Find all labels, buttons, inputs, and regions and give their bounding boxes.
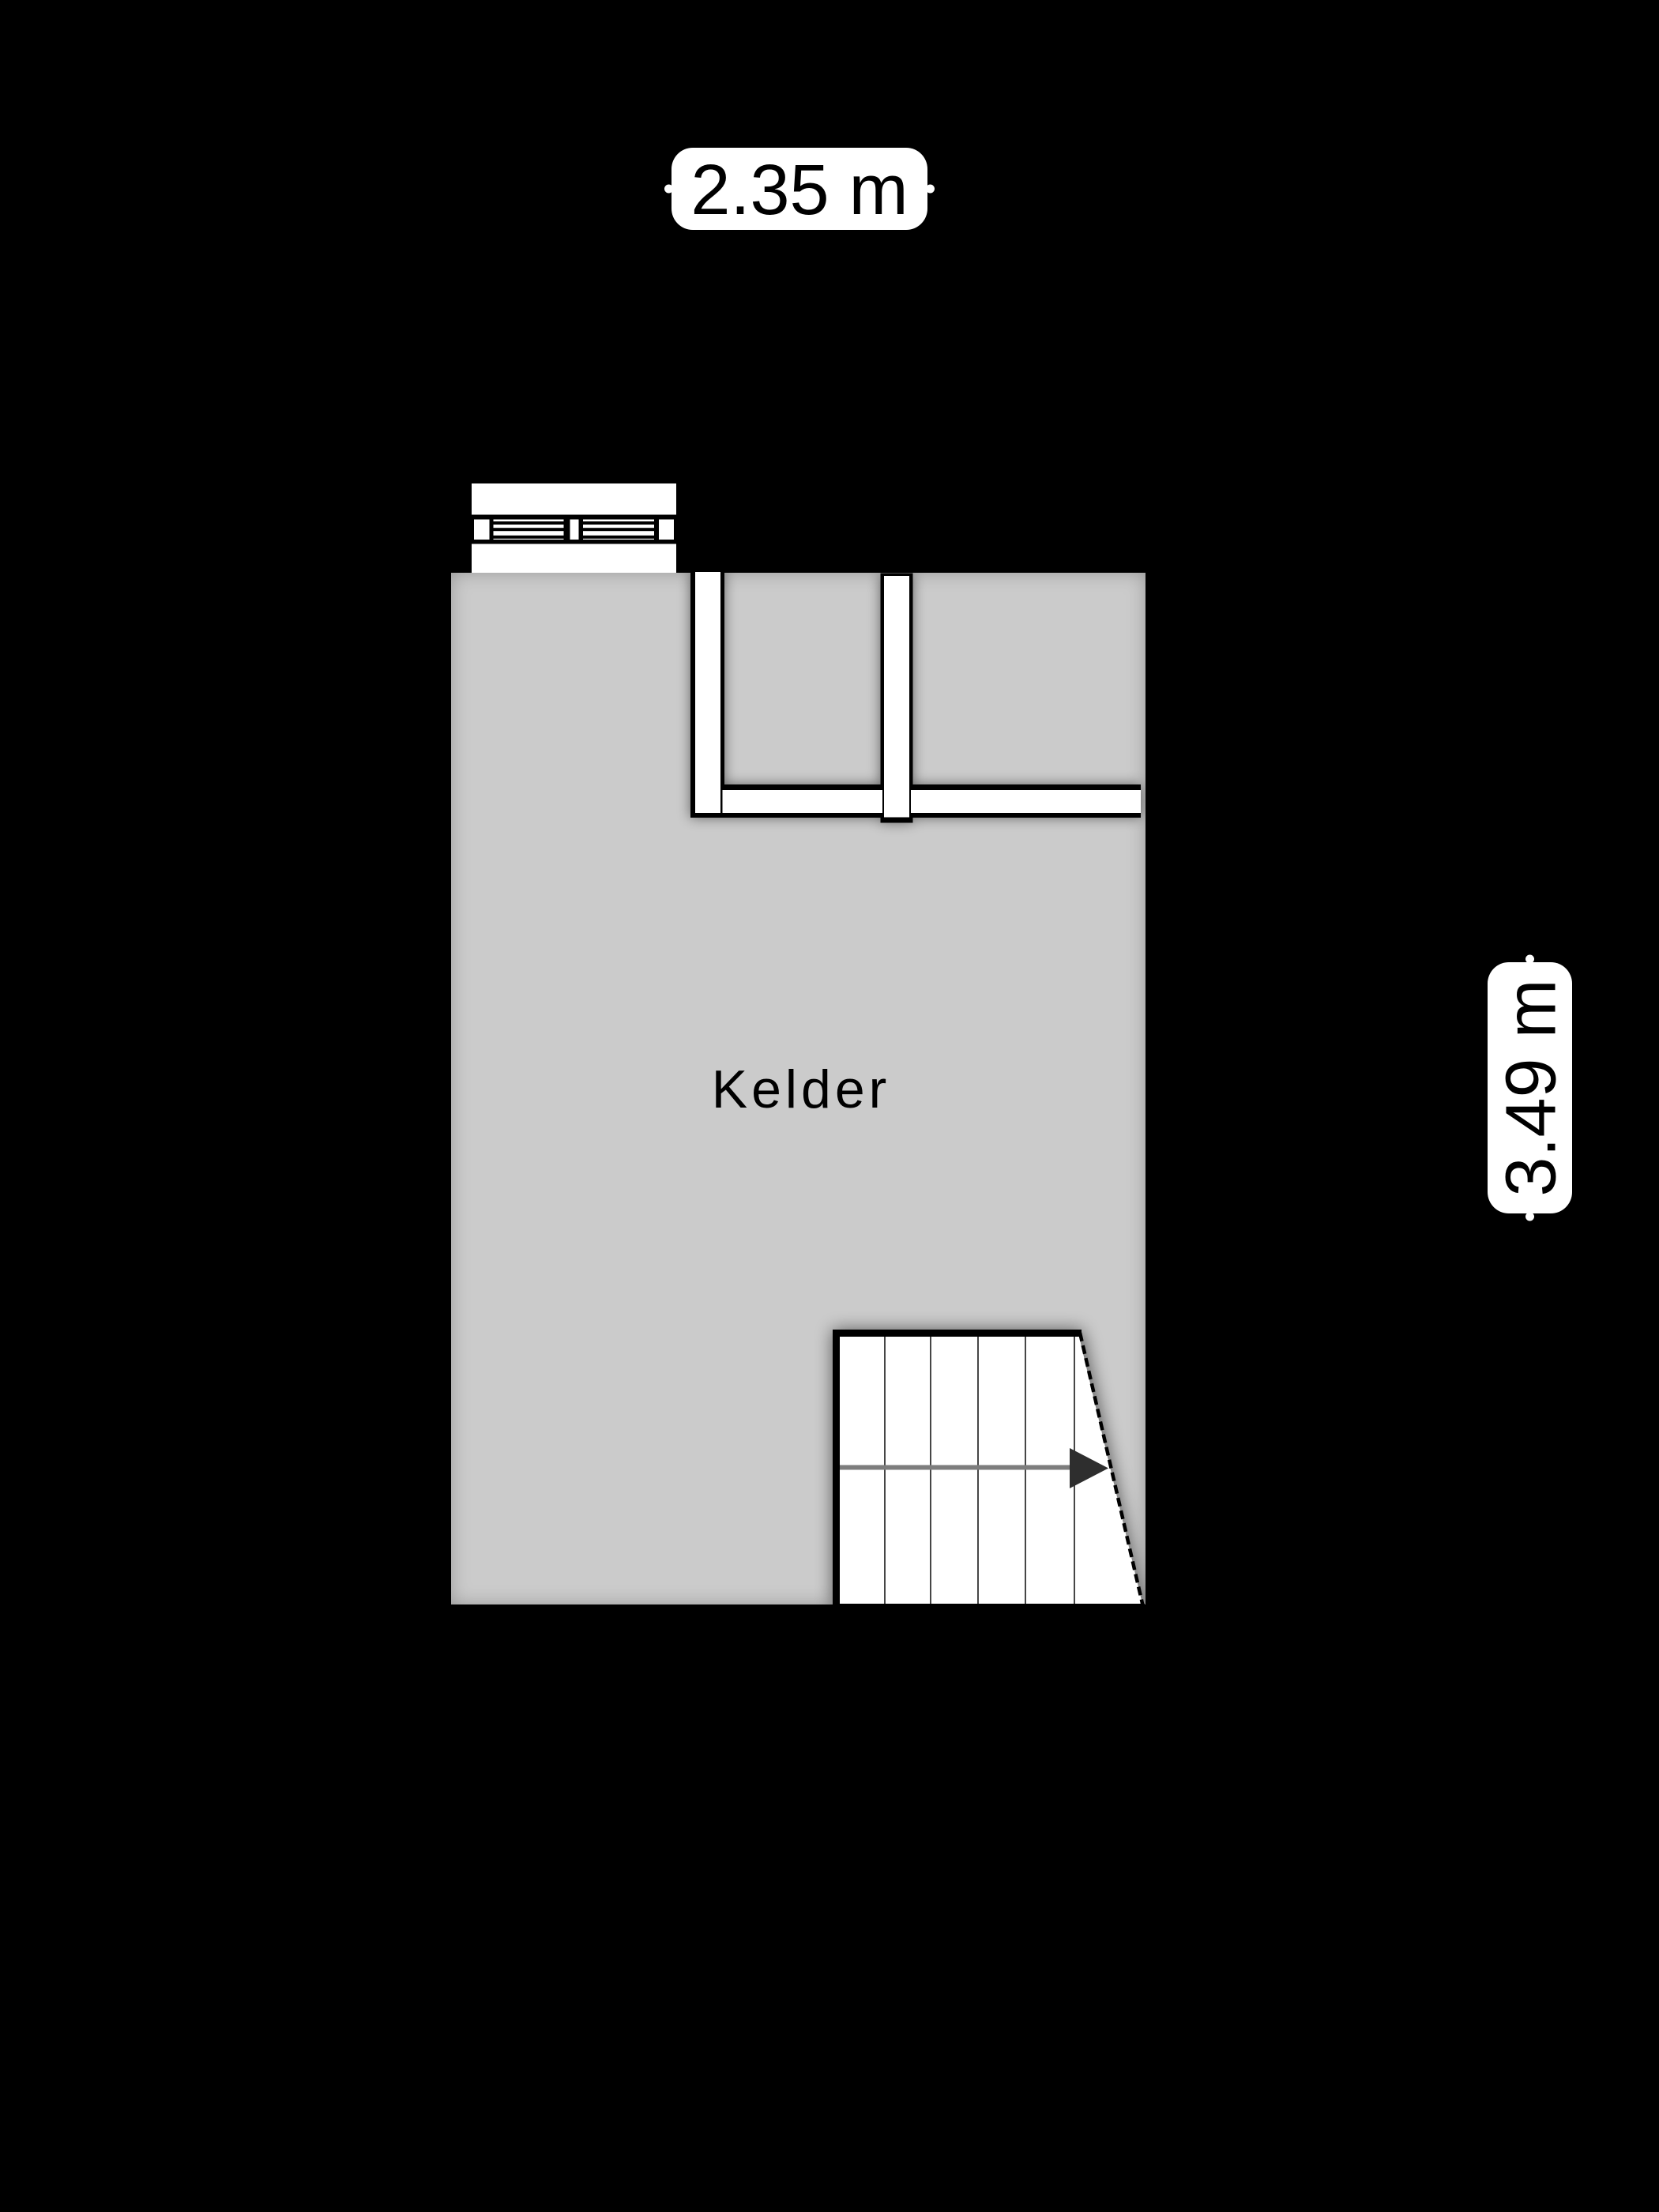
svg-text:3.49 m: 3.49 m [1492, 979, 1571, 1196]
svg-text:2.35 m: 2.35 m [690, 151, 908, 230]
svg-text:Kelder: Kelder [712, 1059, 891, 1119]
